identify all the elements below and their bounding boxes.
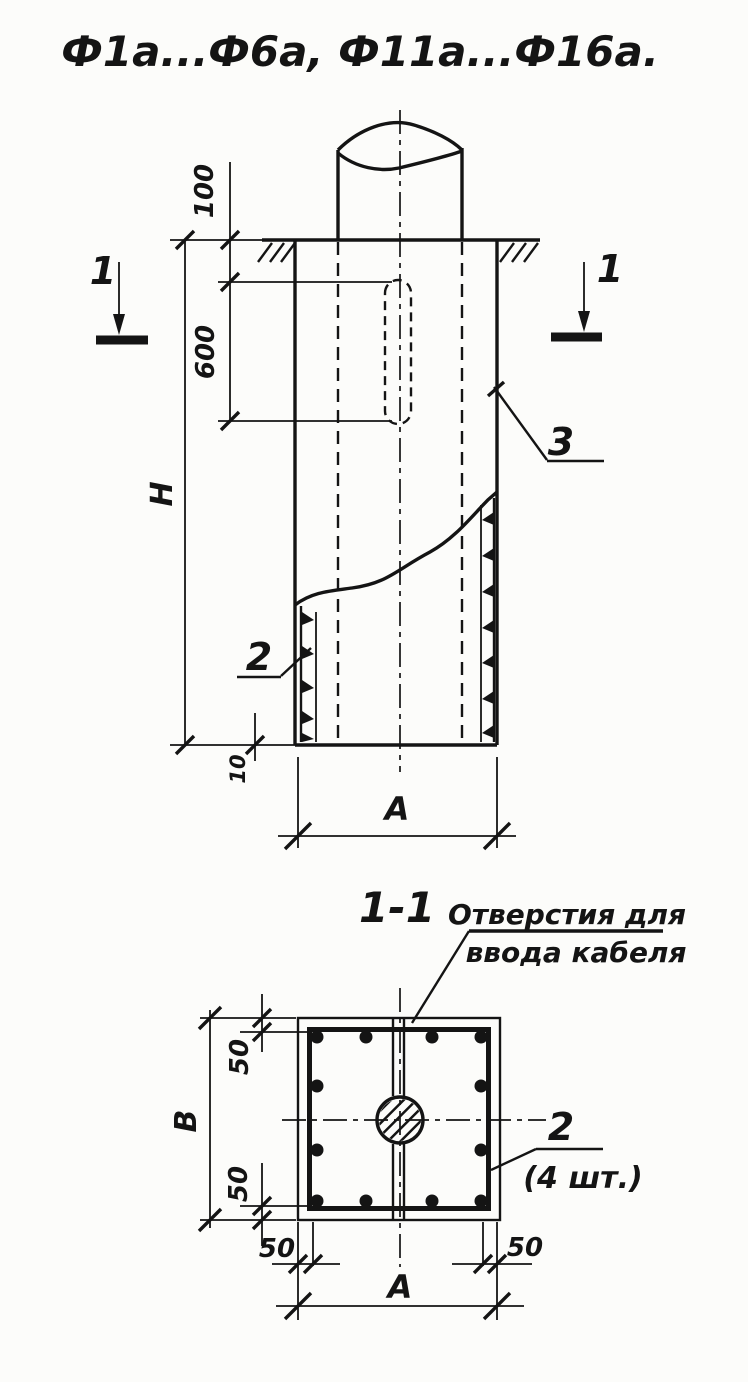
callout-3-label: 3 bbox=[548, 420, 574, 464]
foundation-drawing: Ф1а...Ф6а, Ф11а...Ф16а. bbox=[0, 0, 748, 1382]
dimension-10: 10 bbox=[170, 713, 295, 784]
dim-H-label: Н bbox=[145, 481, 180, 506]
elevation-view: 100 600 Н 10 А bbox=[90, 110, 623, 849]
rebar-left bbox=[301, 606, 316, 742]
section-cut-marker-right: 1 bbox=[551, 247, 623, 337]
note-line2: ввода кабеля bbox=[466, 936, 687, 969]
callout-qty-label: (4 шт.) bbox=[523, 1161, 642, 1196]
dimension-H: Н bbox=[145, 231, 194, 754]
section-cut-marker-left: 1 bbox=[90, 249, 148, 340]
section-view: 1-1 Отверстия для ввода кабеля bbox=[169, 883, 686, 1320]
dim-50-label: 50 bbox=[507, 1233, 543, 1263]
cable-slot bbox=[385, 280, 411, 424]
foundation-outline bbox=[295, 240, 497, 745]
dim-50-label: 50 bbox=[224, 1166, 254, 1202]
cable-holes-note: Отверстия для ввода кабеля bbox=[412, 898, 686, 1023]
ground-hatch-right bbox=[500, 243, 538, 262]
note-line1: Отверстия для bbox=[448, 898, 686, 931]
callout-sleeve: 3 bbox=[488, 382, 604, 464]
dimension-50-bottom-left: 50 bbox=[259, 1222, 340, 1273]
section-mark-label: 1 bbox=[90, 249, 116, 293]
drawing-title: Ф1а...Ф6а, Ф11а...Ф16а. bbox=[61, 27, 659, 76]
dim-A-label: А bbox=[382, 790, 410, 828]
dim-A-label: А bbox=[385, 1268, 413, 1306]
section-title: 1-1 bbox=[359, 883, 435, 932]
dimension-50-top: 50 bbox=[225, 994, 308, 1075]
ground-hatch-left bbox=[258, 243, 295, 262]
callout-2-label: 2 bbox=[548, 1105, 574, 1149]
rebar-right bbox=[481, 498, 494, 742]
drawing-sheet: Ф1а...Ф6а, Ф11а...Ф16а. bbox=[0, 0, 748, 1382]
dim-50-label: 50 bbox=[259, 1234, 295, 1264]
dim-B-label: В bbox=[169, 1110, 204, 1133]
callout-2-label: 2 bbox=[246, 635, 272, 679]
break-out-line bbox=[295, 492, 497, 605]
dim-100-label: 100 bbox=[190, 164, 220, 218]
dim-600-label: 600 bbox=[191, 325, 221, 379]
callout-rebar-section: 2 (4 шт.) bbox=[491, 1105, 643, 1196]
dim-10-label: 10 bbox=[226, 754, 250, 783]
dim-50-label: 50 bbox=[225, 1039, 255, 1075]
section-mark-label: 1 bbox=[597, 247, 623, 291]
dimension-A-elevation: А bbox=[278, 757, 516, 849]
dimension-100-600: 100 600 bbox=[190, 162, 392, 430]
